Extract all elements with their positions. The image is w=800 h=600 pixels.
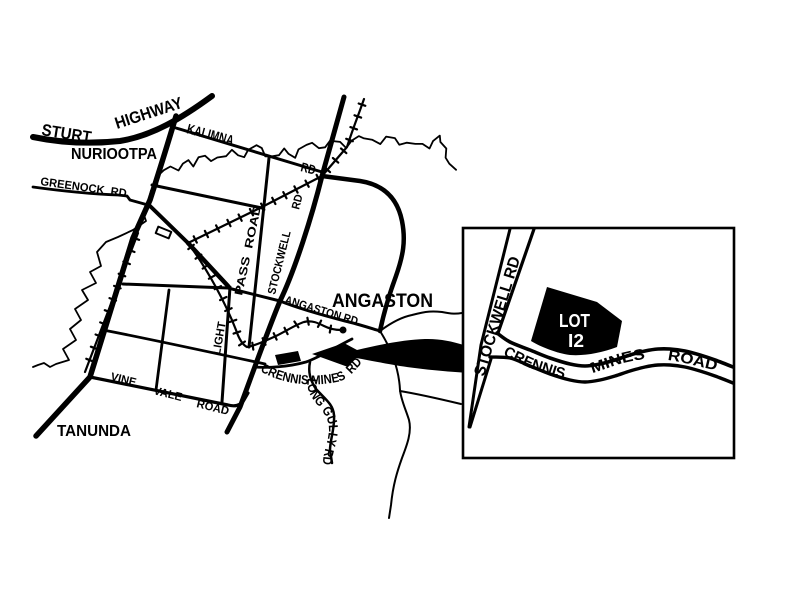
svg-text:NURIOOTPA: NURIOOTPA: [71, 146, 157, 163]
svg-text:I2: I2: [568, 331, 584, 351]
svg-text:ANGASTON: ANGASTON: [332, 290, 433, 312]
svg-text:LOT: LOT: [559, 311, 590, 331]
svg-text:TANUNDA: TANUNDA: [57, 423, 131, 440]
